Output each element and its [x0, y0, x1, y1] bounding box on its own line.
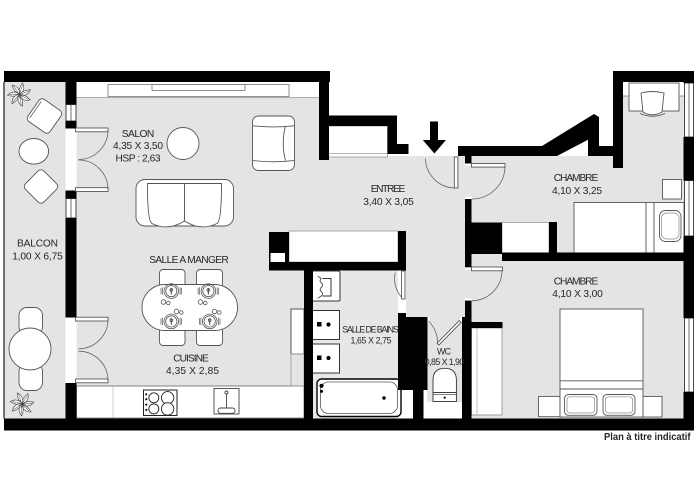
svg-text:SALLE DE BAINS: SALLE DE BAINS: [342, 325, 399, 335]
svg-text:CHAMBRE: CHAMBRE: [554, 277, 599, 288]
svg-text:ENTREE: ENTREE: [371, 184, 406, 195]
svg-text:SALON: SALON: [122, 129, 155, 140]
svg-text:0,85 X 1,90: 0,85 X 1,90: [425, 357, 465, 367]
svg-text:4,10 X 3,25: 4,10 X 3,25: [552, 186, 602, 197]
svg-text:BALCON: BALCON: [17, 239, 58, 250]
svg-text:4,35 X 2,85: 4,35 X 2,85: [166, 366, 219, 377]
svg-text:SALLE A MANGER: SALLE A MANGER: [149, 255, 229, 266]
svg-text:4,35 X 3,50: 4,35 X 3,50: [113, 141, 163, 152]
svg-text:HSP : 2,63: HSP : 2,63: [116, 154, 161, 165]
svg-text:Plan à titre indicatif: Plan à titre indicatif: [604, 432, 691, 443]
svg-text:WC: WC: [437, 347, 452, 357]
svg-text:1,00 X 6,75: 1,00 X 6,75: [12, 252, 63, 263]
svg-text:CUISINE: CUISINE: [173, 354, 209, 365]
svg-text:4,10 X 3,00: 4,10 X 3,00: [552, 289, 603, 300]
svg-text:CHAMBRE: CHAMBRE: [554, 173, 599, 184]
svg-text:1,65 X 2,75: 1,65 X 2,75: [351, 335, 392, 345]
svg-text:3,40 X 3,05: 3,40 X 3,05: [363, 197, 414, 208]
